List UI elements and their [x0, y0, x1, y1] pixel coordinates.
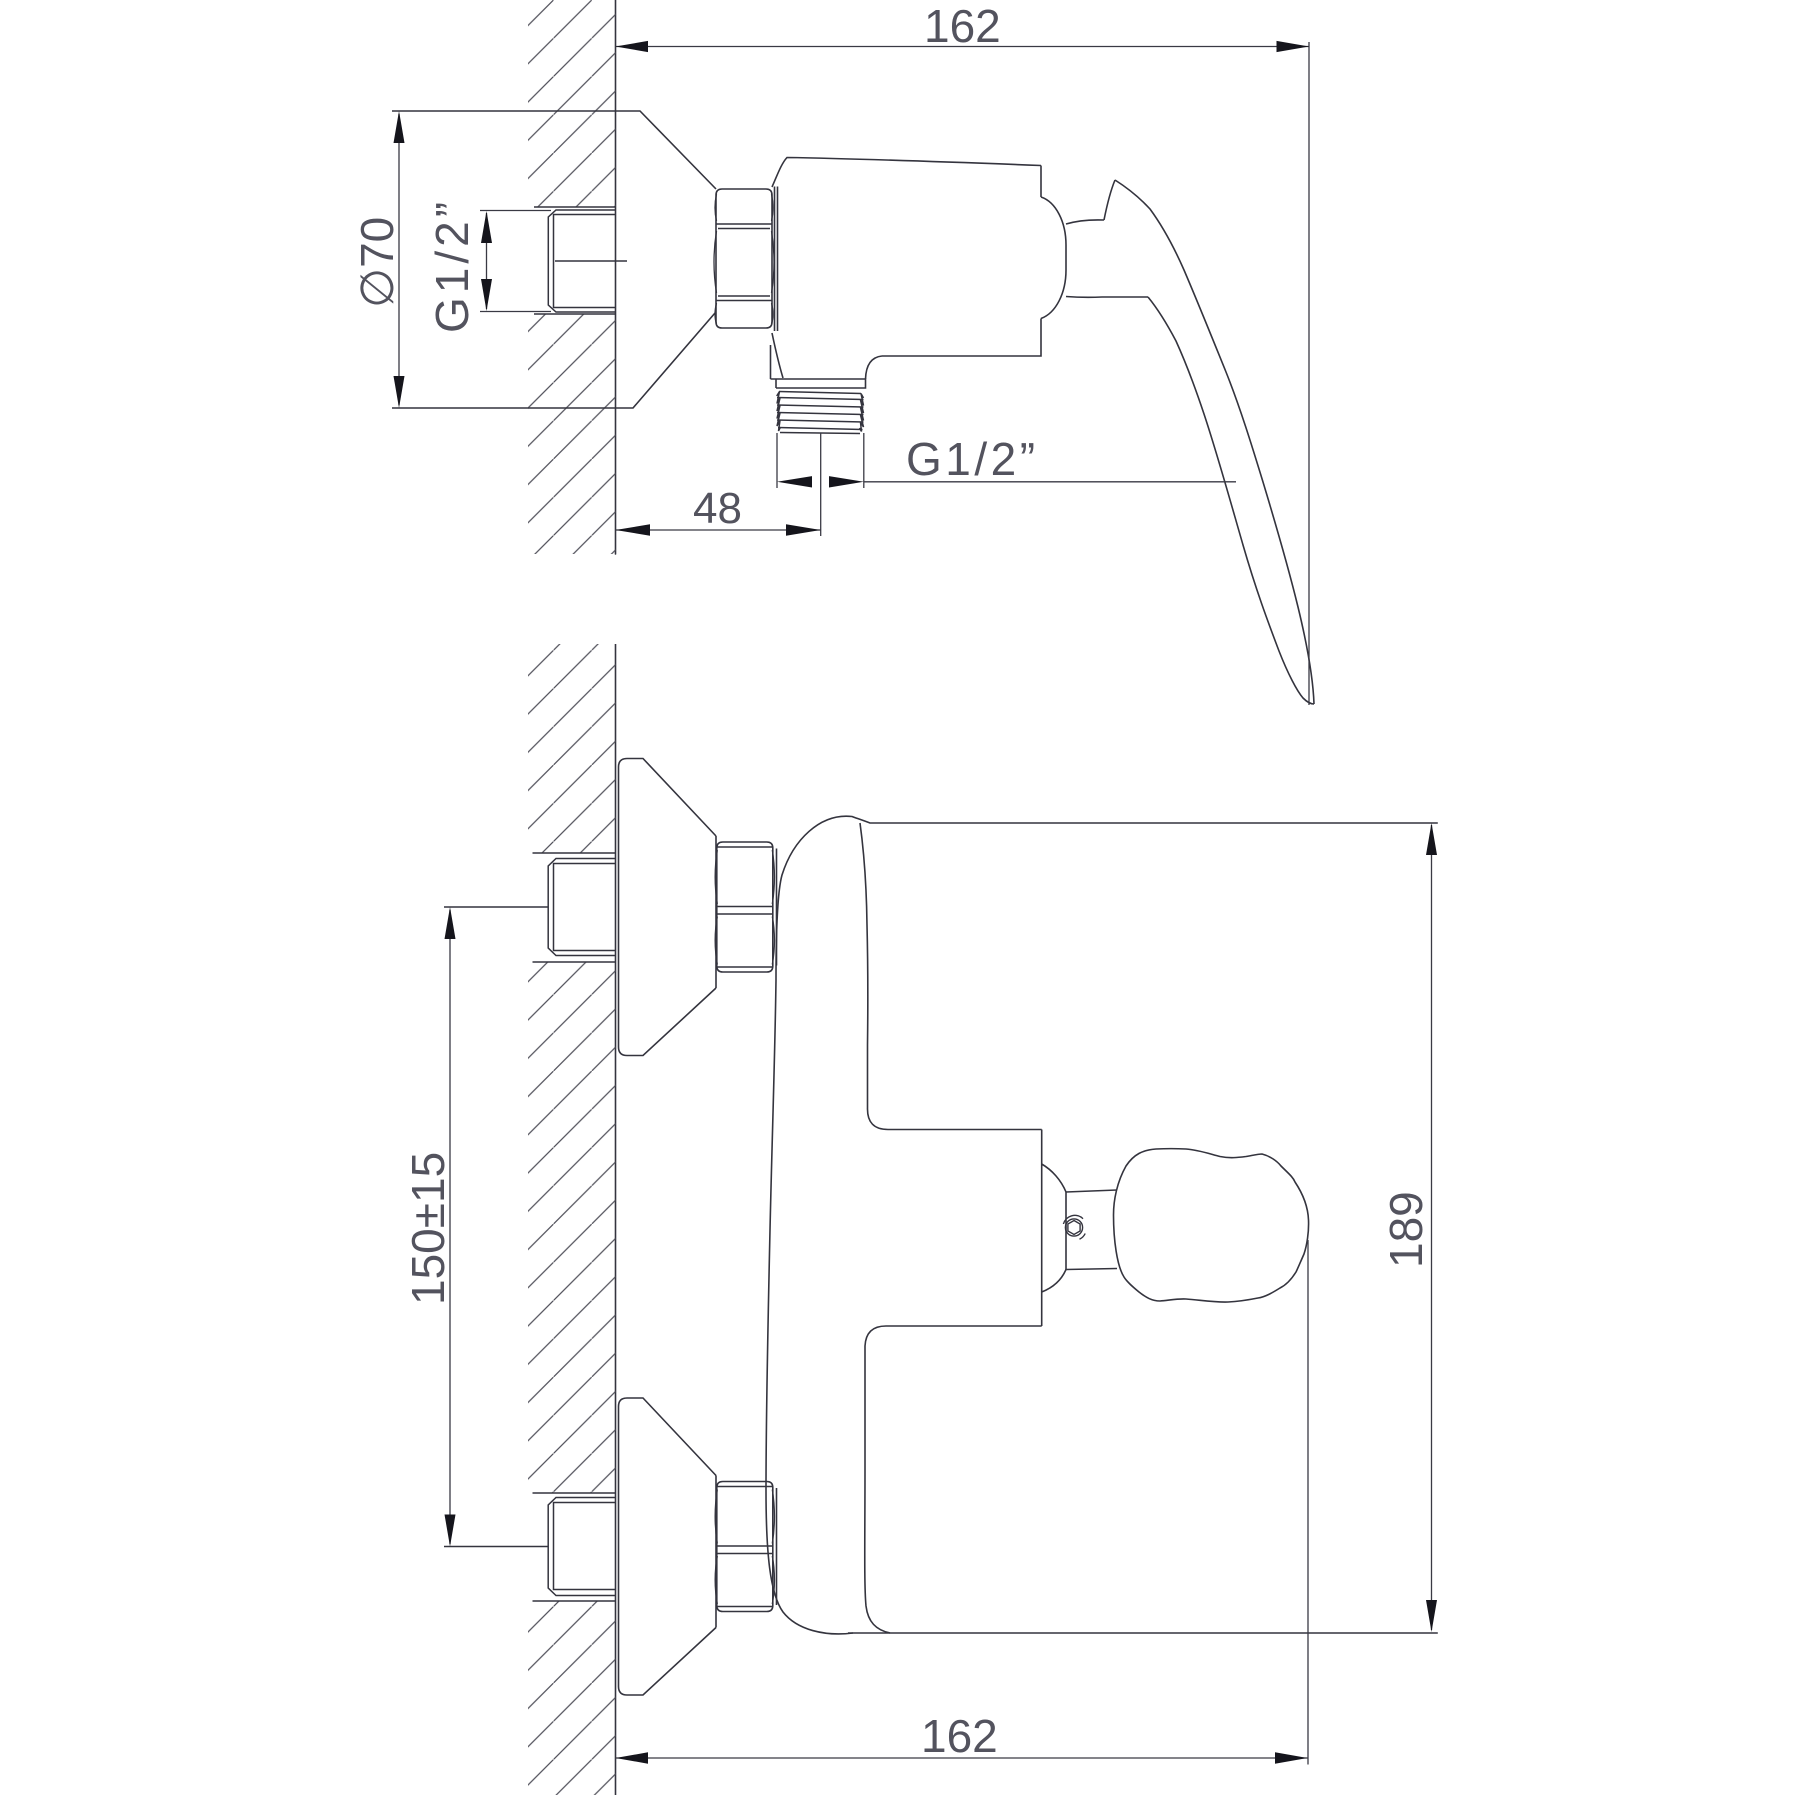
svg-text:48: 48	[693, 484, 742, 533]
svg-text:150±15: 150±15	[402, 1152, 454, 1305]
svg-text:189: 189	[1380, 1191, 1432, 1268]
svg-text:G1/2”: G1/2”	[906, 433, 1039, 485]
svg-text:162: 162	[924, 0, 1001, 52]
svg-text:162: 162	[921, 1710, 998, 1762]
svg-text:G1/2”: G1/2”	[426, 198, 478, 333]
svg-text:∅70: ∅70	[351, 217, 403, 308]
